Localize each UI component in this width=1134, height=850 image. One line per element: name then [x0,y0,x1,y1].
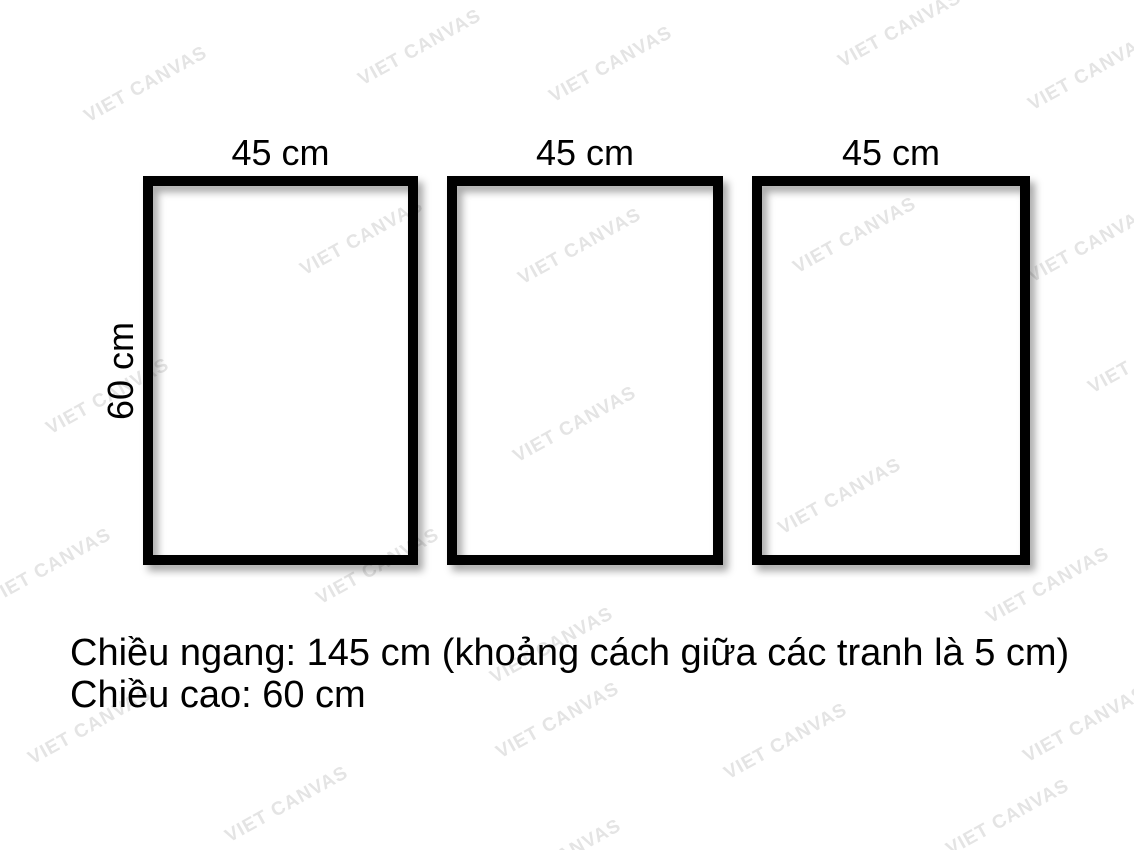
watermark-text: VIET CANVAS [1025,202,1134,288]
watermark-text: VIET CANVAS [81,42,212,128]
dimensions-caption: Chiều ngang: 145 cm (khoảng cách giữa cá… [70,632,1069,716]
caption-line-vertical: Chiều cao: 60 cm [70,674,1069,716]
frame-3-width-label: 45 cm [752,133,1030,173]
watermark-text: VIET CANVAS [0,524,115,610]
watermark-text: VIET CANVAS [835,0,966,73]
watermark-text: VIET CANVAS [355,5,486,91]
watermark-text: VIET CANVAS [943,775,1074,850]
watermark-text: VIET CANVAS [495,815,626,850]
watermark-text: VIET CANVAS [1025,30,1134,116]
picture-frame-1 [143,176,418,565]
dimension-diagram: VIET CANVASVIET CANVASVIET CANVASVIET CA… [0,0,1134,850]
frame-1-width-label: 45 cm [143,133,418,173]
watermark-text: VIET CANVAS [546,22,677,108]
picture-frame-2 [447,176,723,565]
caption-line-horizontal: Chiều ngang: 145 cm (khoảng cách giữa cá… [70,632,1069,674]
picture-frame-3 [752,176,1030,565]
watermark-text: VIET CANVAS [1085,313,1134,399]
frame-height-label: 60 cm [97,311,145,431]
watermark-text: VIET CANVAS [222,762,353,848]
frame-2-width-label: 45 cm [447,133,723,173]
